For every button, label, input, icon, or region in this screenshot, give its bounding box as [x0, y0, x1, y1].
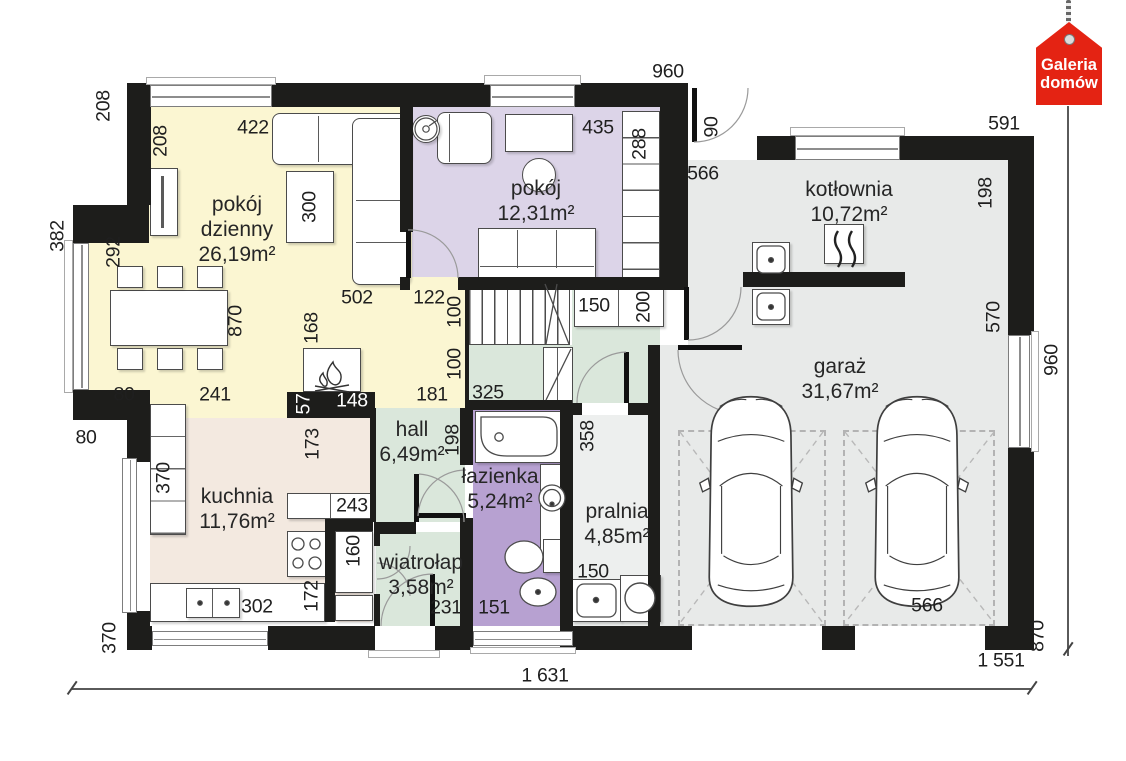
- sofa-seat-line: [480, 266, 594, 267]
- wall: [464, 522, 473, 534]
- wall: [435, 626, 473, 650]
- room-name: pralnia: [584, 499, 649, 524]
- wall: [374, 522, 416, 534]
- dimension-label: 591: [988, 113, 1020, 136]
- dimension-label: 198: [975, 177, 998, 209]
- dimension-label: 325: [472, 382, 504, 405]
- room-name: garaż: [801, 354, 878, 379]
- room-label-room: pokój 12,31m²: [497, 176, 574, 226]
- floor-plan: pokój dzienny 26,19m² pokój 12,31m² kotł…: [0, 0, 1126, 761]
- window-sill: [1031, 331, 1039, 452]
- window: [122, 458, 137, 613]
- dimension-label: 150: [578, 295, 610, 318]
- dimension-label: 358: [577, 420, 600, 452]
- counter-divider: [330, 494, 331, 518]
- dimension-label: 570: [983, 301, 1006, 333]
- wall: [648, 345, 660, 626]
- dimension-label: 382: [47, 220, 70, 252]
- wall: [1008, 136, 1034, 335]
- wall: [127, 626, 152, 650]
- room-area: 26,19m²: [189, 242, 285, 267]
- window-sill: [484, 75, 581, 85]
- tv-cabinet: [150, 168, 178, 236]
- side-table: [412, 115, 440, 143]
- brand-line1: Galeria: [1036, 56, 1102, 74]
- logo-grommet: [1064, 34, 1075, 45]
- wall: [458, 277, 688, 290]
- room-name: kotłownia: [805, 177, 893, 202]
- sofa-seam: [318, 116, 319, 162]
- room-label-boiler: kotłownia 10,72m²: [805, 177, 893, 227]
- room-name: pokój: [497, 176, 574, 201]
- sink: [752, 289, 790, 325]
- stair-line: [557, 348, 558, 402]
- dimension-label: 370: [99, 622, 122, 654]
- sink-divider: [212, 589, 213, 617]
- window-sill: [790, 127, 905, 136]
- dimension-label: 198: [442, 424, 465, 456]
- wall: [757, 136, 797, 160]
- garage-pass-left: [688, 272, 743, 287]
- wall: [560, 626, 692, 650]
- door-leaf: [684, 287, 689, 340]
- dimension-label: 200: [633, 291, 656, 323]
- door-leaf: [418, 513, 466, 518]
- wall: [400, 107, 413, 232]
- dimension-label: 300: [299, 191, 322, 223]
- wall: [560, 408, 573, 626]
- armchair-back-line: [449, 114, 450, 162]
- dining-chair: [157, 266, 183, 288]
- dining-table: [110, 290, 228, 346]
- room-label-laundry: pralnia 4,85m²: [584, 499, 649, 549]
- dimension-label: 960: [1041, 344, 1064, 376]
- dimension-label: 100: [444, 348, 467, 380]
- fireplace: [303, 348, 361, 392]
- room-label-bathroom: łazienka 5,24m²: [461, 464, 538, 514]
- room-area: 4,85m²: [584, 524, 649, 549]
- closet-divider: [618, 288, 619, 326]
- wall: [272, 83, 688, 107]
- window: [150, 85, 272, 107]
- window: [795, 136, 900, 160]
- dining-chair: [197, 348, 223, 370]
- dim-line-bottom: [72, 688, 1032, 690]
- sofa-seam: [356, 242, 406, 243]
- dimension-label: 1 631: [521, 665, 568, 688]
- wall: [374, 532, 380, 546]
- dimension-label: 870: [1027, 620, 1050, 652]
- room-name: pokój dzienny: [189, 192, 285, 242]
- dining-chair: [197, 266, 223, 288]
- dimension-label: 208: [93, 90, 116, 122]
- door-leaf: [414, 474, 419, 522]
- bathtub: [475, 411, 565, 463]
- dimension-label: 288: [629, 128, 652, 160]
- sofa: [478, 228, 596, 282]
- dim-line-right: [1067, 106, 1069, 656]
- dimension-label: 302: [241, 596, 273, 619]
- dimension-label: 80: [75, 427, 96, 450]
- dimension-label: 566: [911, 595, 943, 618]
- dining-chair: [157, 348, 183, 370]
- sofa-seam: [517, 230, 518, 268]
- armchair: [437, 112, 492, 164]
- dimension-label: 173: [302, 428, 325, 460]
- dimension-label: 160: [343, 535, 366, 567]
- boiler: [824, 224, 864, 264]
- dimension-label: 151: [478, 597, 510, 620]
- wall: [822, 626, 855, 650]
- dimension-label: 150: [577, 561, 609, 584]
- dimension-label: 57: [293, 393, 316, 414]
- window-sill: [470, 647, 576, 654]
- wall: [268, 626, 375, 650]
- wall: [628, 403, 660, 415]
- room-area: 31,67m²: [801, 379, 878, 404]
- dimension-label: 1 551: [977, 650, 1024, 673]
- dimension-label: 208: [150, 125, 173, 157]
- parking-zone-1: [678, 430, 826, 626]
- desk: [505, 114, 573, 152]
- dining-chair: [117, 266, 143, 288]
- staircase: [468, 283, 570, 345]
- sofa-seam: [356, 200, 406, 201]
- room-area: 11,76m²: [199, 509, 274, 534]
- door-leaf: [692, 88, 697, 142]
- dimension-label: 80: [113, 384, 134, 407]
- dimension-label: 231: [430, 597, 462, 620]
- room-label-living: pokój dzienny 26,19m²: [189, 192, 285, 267]
- window-sill: [64, 240, 73, 393]
- dimension-label: 502: [341, 287, 373, 310]
- dimension-label: 122: [413, 287, 445, 310]
- wall: [743, 272, 905, 287]
- brand-line2: domów: [1040, 74, 1098, 92]
- wall: [572, 403, 582, 415]
- room-name: łazienka: [461, 464, 538, 489]
- window: [73, 243, 89, 390]
- dimension-label: 960: [652, 61, 684, 84]
- window-sill: [146, 77, 276, 85]
- dimension-label: 172: [301, 580, 324, 612]
- tv-screen-line: [161, 176, 164, 228]
- door-leaf: [678, 345, 742, 350]
- wall: [370, 408, 376, 522]
- dimension-label: 422: [237, 117, 269, 140]
- room-area: 5,24m²: [461, 489, 538, 514]
- wall: [127, 410, 150, 462]
- room-name: hall: [379, 417, 444, 442]
- dining-chair: [117, 348, 143, 370]
- room-name: wiatrołap: [379, 550, 463, 575]
- window: [490, 85, 575, 107]
- logo-chain: [1066, 0, 1071, 26]
- dimension-label: 148: [336, 390, 368, 413]
- dimension-label: 241: [199, 384, 231, 407]
- room-label-hall: hall 6,49m²: [379, 417, 444, 467]
- cabinet: [335, 595, 373, 621]
- wall: [660, 83, 688, 287]
- room-label-vestibule: wiatrołap 3,58m²: [379, 550, 463, 600]
- room-area: 10,72m²: [805, 202, 893, 227]
- dimension-label: 292: [103, 236, 126, 268]
- entry-step: [368, 650, 440, 658]
- dimension-label: 100: [444, 296, 467, 328]
- window: [152, 631, 268, 646]
- room-area: 12,31m²: [497, 201, 574, 226]
- wall: [400, 277, 410, 290]
- room-label-garage: garaż 31,67m²: [801, 354, 878, 404]
- door-leaf: [406, 230, 411, 278]
- dimension-label: 435: [582, 117, 614, 140]
- laundry-sink: [572, 579, 621, 622]
- stove: [287, 531, 327, 577]
- dimension-label: 870: [225, 305, 248, 337]
- window: [1008, 335, 1030, 448]
- wall: [900, 136, 1008, 160]
- dimension-label: 168: [301, 312, 324, 344]
- room-name: kuchnia: [199, 484, 274, 509]
- window: [473, 631, 573, 646]
- sofa-seam: [556, 230, 557, 268]
- garage-pass-right: [905, 272, 1008, 287]
- wall: [325, 531, 335, 622]
- wall: [325, 519, 373, 531]
- dimension-label: 243: [336, 495, 368, 518]
- wall: [127, 83, 152, 107]
- dimension-label: 566: [687, 163, 719, 186]
- dimension-label: 181: [416, 384, 448, 407]
- door-leaf: [624, 352, 629, 403]
- dimension-label: 370: [153, 462, 176, 494]
- room-label-kitchen: kuchnia 11,76m²: [199, 484, 274, 534]
- room-area: 6,49m²: [379, 442, 444, 467]
- dimension-label: 90: [701, 116, 724, 137]
